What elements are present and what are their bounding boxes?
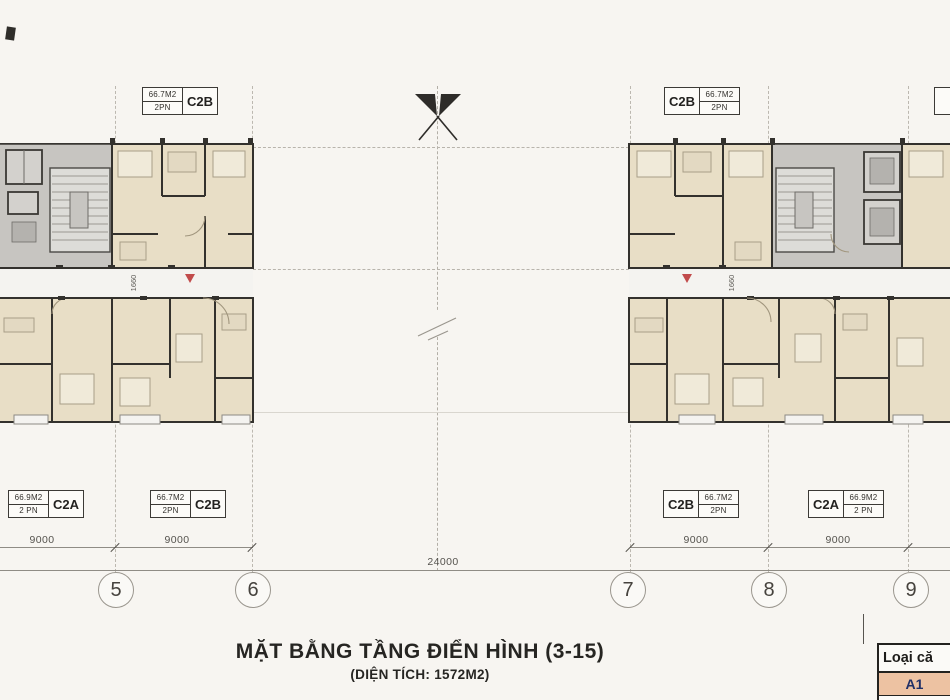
dimension-line-left <box>0 547 253 548</box>
legend-frame-line <box>863 614 864 644</box>
unit-code: C2B <box>182 88 217 114</box>
unit-bedrooms: 2PN <box>151 505 190 518</box>
grid-bubble-6: 6 <box>235 572 271 608</box>
block-right-top-wing <box>629 144 950 268</box>
floor-plan-block-left: 1660 <box>0 138 256 430</box>
unit-label-bottom-right-c2b: 66.7M2 2PN C2B <box>663 490 739 518</box>
unit-bedrooms: 2PN <box>143 102 182 115</box>
page-title: MẶT BẰNG TẦNG ĐIỂN HÌNH (3-15) <box>160 640 680 664</box>
axis-break-symbol <box>410 306 466 346</box>
corridor-width-label-left: 1660 <box>129 275 138 292</box>
block-left-top-wing <box>0 144 253 268</box>
dim-label-9000-2: 9000 <box>165 534 190 546</box>
dimension-line-overall <box>0 570 950 571</box>
unit-label-bottom-left-c2a: 66.9M2 2 PN C2A <box>8 490 84 518</box>
legend-table: Loại că A1 C2A <box>877 643 950 700</box>
corridor-width-label-right: 1660 <box>727 275 736 292</box>
legend-header: Loại că <box>879 645 950 673</box>
dim-label-9000-1: 9000 <box>30 534 55 546</box>
unit-code: C2A <box>48 491 83 517</box>
connector-line-corridor <box>253 269 629 270</box>
unit-area: 66.7M2 <box>143 88 182 102</box>
unit-area: 66.7M2 <box>700 88 739 102</box>
dimension-line-right <box>630 547 950 548</box>
unit-label-top-left: 66.7M2 2PN C2B <box>142 87 218 115</box>
block-right-bottom-wing <box>629 298 950 424</box>
unit-code: C2B <box>664 491 699 517</box>
grid-bubble-5: 5 <box>98 572 134 608</box>
connector-line-bottom <box>253 412 629 413</box>
floor-plan-sheet: 1660 <box>0 0 950 700</box>
dim-label-9000-4: 9000 <box>826 534 851 546</box>
legend-row-a1: A1 <box>879 673 950 696</box>
unit-area: 66.9M2 <box>9 491 48 505</box>
connector-line-top <box>253 147 629 148</box>
unit-label-bottom-left-c2b: 66.7M2 2PN C2B <box>150 490 226 518</box>
unit-area: 66.9M2 <box>844 491 883 505</box>
floor-plan-block-right: 1660 <box>627 138 950 430</box>
dim-label-9000-3: 9000 <box>684 534 709 546</box>
unit-bedrooms: 2PN <box>700 102 739 115</box>
grid-bubble-9: 9 <box>893 572 929 608</box>
unit-area: 66.7M2 <box>151 491 190 505</box>
unit-bedrooms: 2 PN <box>9 505 48 518</box>
legend-row-c2a: C2A <box>879 696 950 700</box>
unit-label-bottom-right-c2a: 66.9M2 2 PN C2A <box>808 490 884 518</box>
unit-area: 66.7M2 <box>699 491 738 505</box>
unit-bedrooms: 2 PN <box>844 505 883 518</box>
unit-code: C2B <box>665 88 700 114</box>
unit-label-top-right: 66.7M2 2PN C2B <box>664 87 740 115</box>
unit-code: C2A <box>809 491 844 517</box>
title-block: MẶT BẰNG TẦNG ĐIỂN HÌNH (3-15) (DIỆN TÍC… <box>160 640 680 682</box>
artifact-mark <box>5 26 16 40</box>
dim-label-24000: 24000 <box>427 556 458 568</box>
unit-bedrooms: 2PN <box>699 505 738 518</box>
unit-code: C2B <box>190 491 225 517</box>
grid-bubble-8: 8 <box>751 572 787 608</box>
section-marker-icon <box>405 86 469 144</box>
block-left-bottom-wing <box>0 298 253 424</box>
unit-label-cut-right-edge <box>934 87 950 115</box>
page-subtitle: (DIỆN TÍCH: 1572M2) <box>160 667 680 682</box>
grid-bubble-7: 7 <box>610 572 646 608</box>
